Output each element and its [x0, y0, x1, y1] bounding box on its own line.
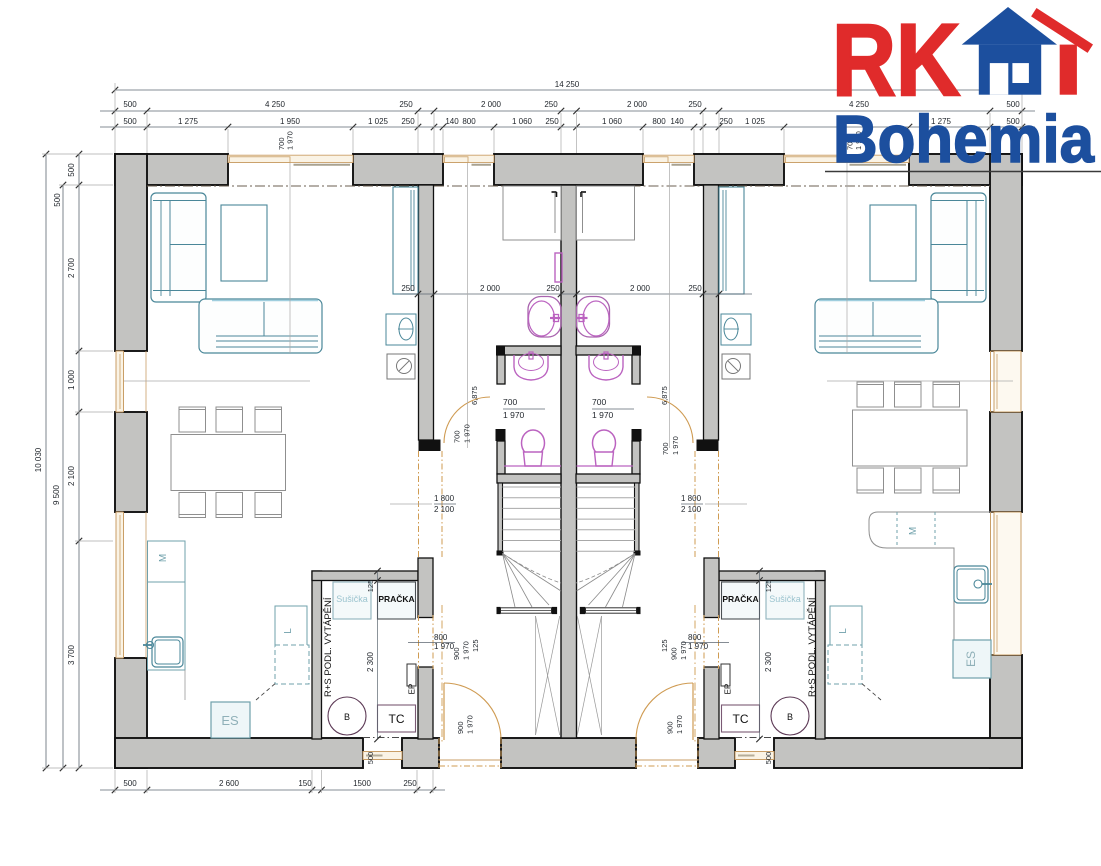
svg-text:800: 800: [462, 117, 476, 126]
svg-text:700: 700: [503, 397, 517, 407]
svg-text:6,875: 6,875: [470, 386, 479, 405]
svg-text:900: 900: [670, 647, 679, 660]
svg-text:250: 250: [688, 100, 702, 109]
svg-text:500: 500: [123, 117, 137, 126]
svg-text:2 000: 2 000: [630, 284, 651, 293]
svg-text:R+S PODL. VYTÁPĚNÍ: R+S PODL. VYTÁPĚNÍ: [807, 597, 818, 697]
svg-text:1 025: 1 025: [368, 117, 389, 126]
svg-text:500: 500: [67, 163, 76, 177]
svg-text:R+S PODL. VYTÁPĚNÍ: R+S PODL. VYTÁPĚNÍ: [323, 597, 334, 697]
svg-text:2 000: 2 000: [480, 284, 501, 293]
svg-text:EP: EP: [724, 684, 733, 695]
svg-text:TC: TC: [733, 712, 749, 726]
svg-text:1 950: 1 950: [280, 117, 301, 126]
svg-text:700: 700: [661, 442, 670, 455]
svg-text:14 250: 14 250: [555, 80, 580, 89]
svg-text:2 100: 2 100: [681, 505, 702, 514]
svg-text:250: 250: [403, 779, 417, 788]
svg-text:EP: EP: [408, 684, 417, 695]
svg-text:RK: RK: [832, 3, 960, 117]
svg-text:500: 500: [764, 752, 773, 765]
svg-text:1 060: 1 060: [512, 117, 533, 126]
svg-text:900: 900: [666, 721, 675, 734]
svg-text:2 100: 2 100: [67, 465, 76, 486]
svg-text:250: 250: [544, 100, 558, 109]
svg-text:250: 250: [401, 284, 415, 293]
svg-text:1500: 1500: [353, 779, 371, 788]
svg-text:700: 700: [453, 430, 462, 443]
svg-text:2 100: 2 100: [434, 505, 455, 514]
svg-text:2 600: 2 600: [219, 779, 240, 788]
svg-text:125: 125: [366, 580, 375, 593]
svg-text:500: 500: [123, 100, 137, 109]
svg-text:6,875: 6,875: [660, 386, 669, 405]
svg-text:Sušička: Sušička: [769, 594, 801, 604]
svg-text:140: 140: [445, 117, 459, 126]
svg-text:800: 800: [652, 117, 666, 126]
svg-text:Sušička: Sušička: [336, 594, 368, 604]
svg-text:500: 500: [366, 752, 375, 765]
svg-text:B: B: [787, 712, 793, 722]
svg-text:1 970: 1 970: [434, 642, 455, 651]
svg-text:1 800: 1 800: [434, 494, 455, 503]
svg-text:2 700: 2 700: [67, 257, 76, 278]
svg-text:1 970: 1 970: [671, 436, 680, 455]
svg-text:1 025: 1 025: [745, 117, 766, 126]
svg-text:150: 150: [298, 779, 312, 788]
svg-text:1 000: 1 000: [67, 369, 76, 390]
svg-text:1 275: 1 275: [178, 117, 199, 126]
svg-text:125: 125: [764, 580, 773, 593]
svg-text:3 700: 3 700: [67, 644, 76, 665]
svg-text:2 000: 2 000: [627, 100, 648, 109]
svg-text:1 970: 1 970: [466, 715, 475, 734]
svg-text:1 970: 1 970: [286, 131, 295, 150]
svg-text:700: 700: [592, 397, 606, 407]
svg-text:500: 500: [53, 193, 62, 207]
svg-text:140: 140: [670, 117, 684, 126]
svg-text:1 970: 1 970: [462, 641, 471, 660]
svg-text:Bohemia: Bohemia: [833, 102, 1095, 177]
svg-text:M: M: [908, 527, 919, 535]
svg-text:1 060: 1 060: [602, 117, 623, 126]
svg-text:9 500: 9 500: [52, 484, 61, 505]
svg-text:800: 800: [688, 633, 702, 642]
svg-text:125: 125: [471, 639, 480, 652]
svg-text:ES: ES: [221, 713, 239, 728]
svg-text:1 970: 1 970: [503, 410, 525, 420]
svg-text:10 030: 10 030: [34, 447, 43, 472]
svg-text:250: 250: [401, 117, 415, 126]
svg-text:1 800: 1 800: [681, 494, 702, 503]
svg-text:250: 250: [545, 117, 559, 126]
svg-text:M: M: [158, 554, 169, 562]
svg-text:L: L: [283, 628, 294, 634]
svg-text:800: 800: [434, 633, 448, 642]
svg-text:PRAČKA: PRAČKA: [722, 593, 758, 604]
svg-text:ES: ES: [964, 651, 978, 667]
svg-text:PRAČKA: PRAČKA: [378, 593, 414, 604]
svg-text:250: 250: [399, 100, 413, 109]
svg-text:1 970: 1 970: [463, 424, 472, 443]
svg-text:2 000: 2 000: [481, 100, 502, 109]
svg-text:2 300: 2 300: [764, 651, 773, 672]
svg-text:TC: TC: [389, 712, 405, 726]
svg-text:1 970: 1 970: [592, 410, 614, 420]
svg-text:900: 900: [456, 721, 465, 734]
svg-text:1 970: 1 970: [675, 715, 684, 734]
svg-text:L: L: [838, 628, 849, 634]
svg-text:2 300: 2 300: [366, 651, 375, 672]
svg-text:1 970: 1 970: [679, 641, 688, 660]
svg-text:250: 250: [688, 284, 702, 293]
svg-text:125: 125: [660, 639, 669, 652]
svg-text:250: 250: [719, 117, 733, 126]
svg-text:500: 500: [123, 779, 137, 788]
svg-text:4 250: 4 250: [265, 100, 286, 109]
svg-text:250: 250: [546, 284, 560, 293]
svg-text:1 970: 1 970: [688, 642, 709, 651]
svg-text:B: B: [344, 712, 350, 722]
